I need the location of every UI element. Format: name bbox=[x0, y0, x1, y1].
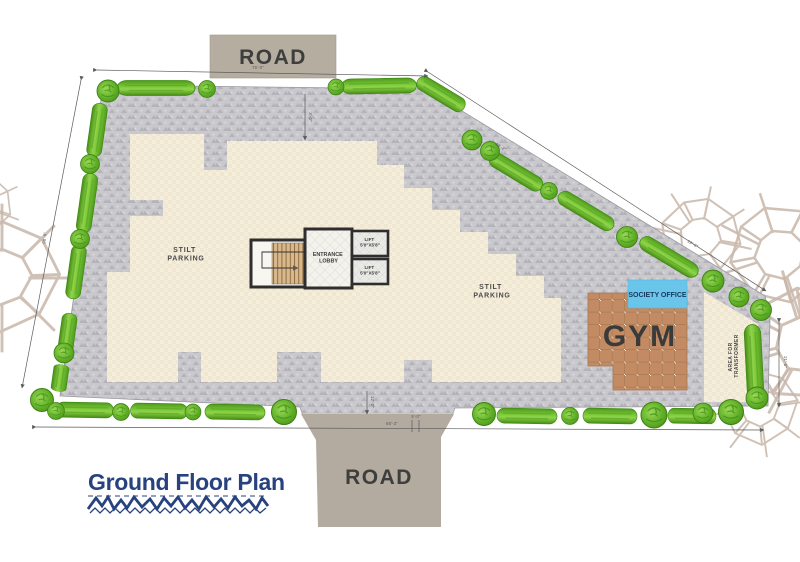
tree-icon bbox=[199, 81, 216, 98]
tree-icon bbox=[473, 403, 496, 426]
tree-icon bbox=[185, 404, 201, 420]
tree-icon bbox=[562, 408, 579, 425]
tree-icon bbox=[113, 404, 130, 421]
tree-icon bbox=[729, 287, 749, 307]
dim-bottom-small: 5'-0" bbox=[411, 414, 421, 419]
hedge-icon bbox=[583, 408, 637, 424]
tree-icon bbox=[693, 403, 713, 423]
page-title: Ground Floor Plan bbox=[88, 469, 285, 495]
tree-icon bbox=[328, 79, 344, 95]
tree-icon bbox=[81, 155, 100, 174]
tree-icon bbox=[719, 400, 744, 425]
dim-road-top-offset: 3'-0" bbox=[308, 112, 313, 122]
tree-icon bbox=[97, 80, 119, 102]
hedge-icon bbox=[117, 81, 195, 96]
society-office-label: SOCIETY OFFICE bbox=[628, 292, 687, 299]
hedge-icon bbox=[205, 404, 265, 420]
tree-icon bbox=[541, 183, 558, 200]
hedge-icon bbox=[130, 403, 187, 419]
title-block: Ground Floor Plan bbox=[88, 469, 285, 513]
road-top: ROAD bbox=[210, 35, 336, 78]
dim-top: 75'-0" bbox=[252, 65, 264, 70]
tree-icon bbox=[48, 403, 65, 420]
hedge-icon bbox=[497, 408, 557, 424]
road-bottom-label: ROAD bbox=[345, 466, 413, 489]
ground-floor-plan-page: GYM SOCIETY OFFICE ENTRANCE LOBBY LIFT 5… bbox=[0, 0, 800, 562]
hedge-icon bbox=[56, 402, 113, 418]
tree-icon bbox=[54, 343, 74, 363]
tree-icon bbox=[641, 402, 667, 428]
dim-road-bottom-offset: 12'-2" bbox=[370, 396, 375, 408]
tree-icon bbox=[71, 230, 90, 249]
tree-icon bbox=[462, 130, 482, 150]
tree-icon bbox=[751, 300, 772, 321]
transformer-label: AREA FOR TRANSFORMER bbox=[728, 334, 740, 377]
dim-right: 21'-0" bbox=[783, 356, 788, 368]
tree-icon bbox=[617, 227, 638, 248]
dim-left: 98'-6" bbox=[41, 231, 47, 244]
dim-bottom: 65'-3" bbox=[386, 421, 398, 426]
tree-icon bbox=[702, 270, 724, 292]
title-ornament bbox=[88, 496, 268, 513]
hedge-icon bbox=[341, 78, 416, 94]
road-bottom: ROAD bbox=[301, 414, 454, 527]
road-top-label: ROAD bbox=[239, 46, 307, 69]
tree-icon bbox=[746, 387, 768, 409]
gym-label: GYM bbox=[603, 320, 677, 353]
parking-aisle-notch bbox=[130, 200, 163, 216]
floor-plan-canvas: GYM SOCIETY OFFICE ENTRANCE LOBBY LIFT 5… bbox=[0, 0, 800, 562]
tree-icon bbox=[272, 400, 297, 425]
dim-diagonal-lower: 19'-6" bbox=[686, 238, 699, 249]
